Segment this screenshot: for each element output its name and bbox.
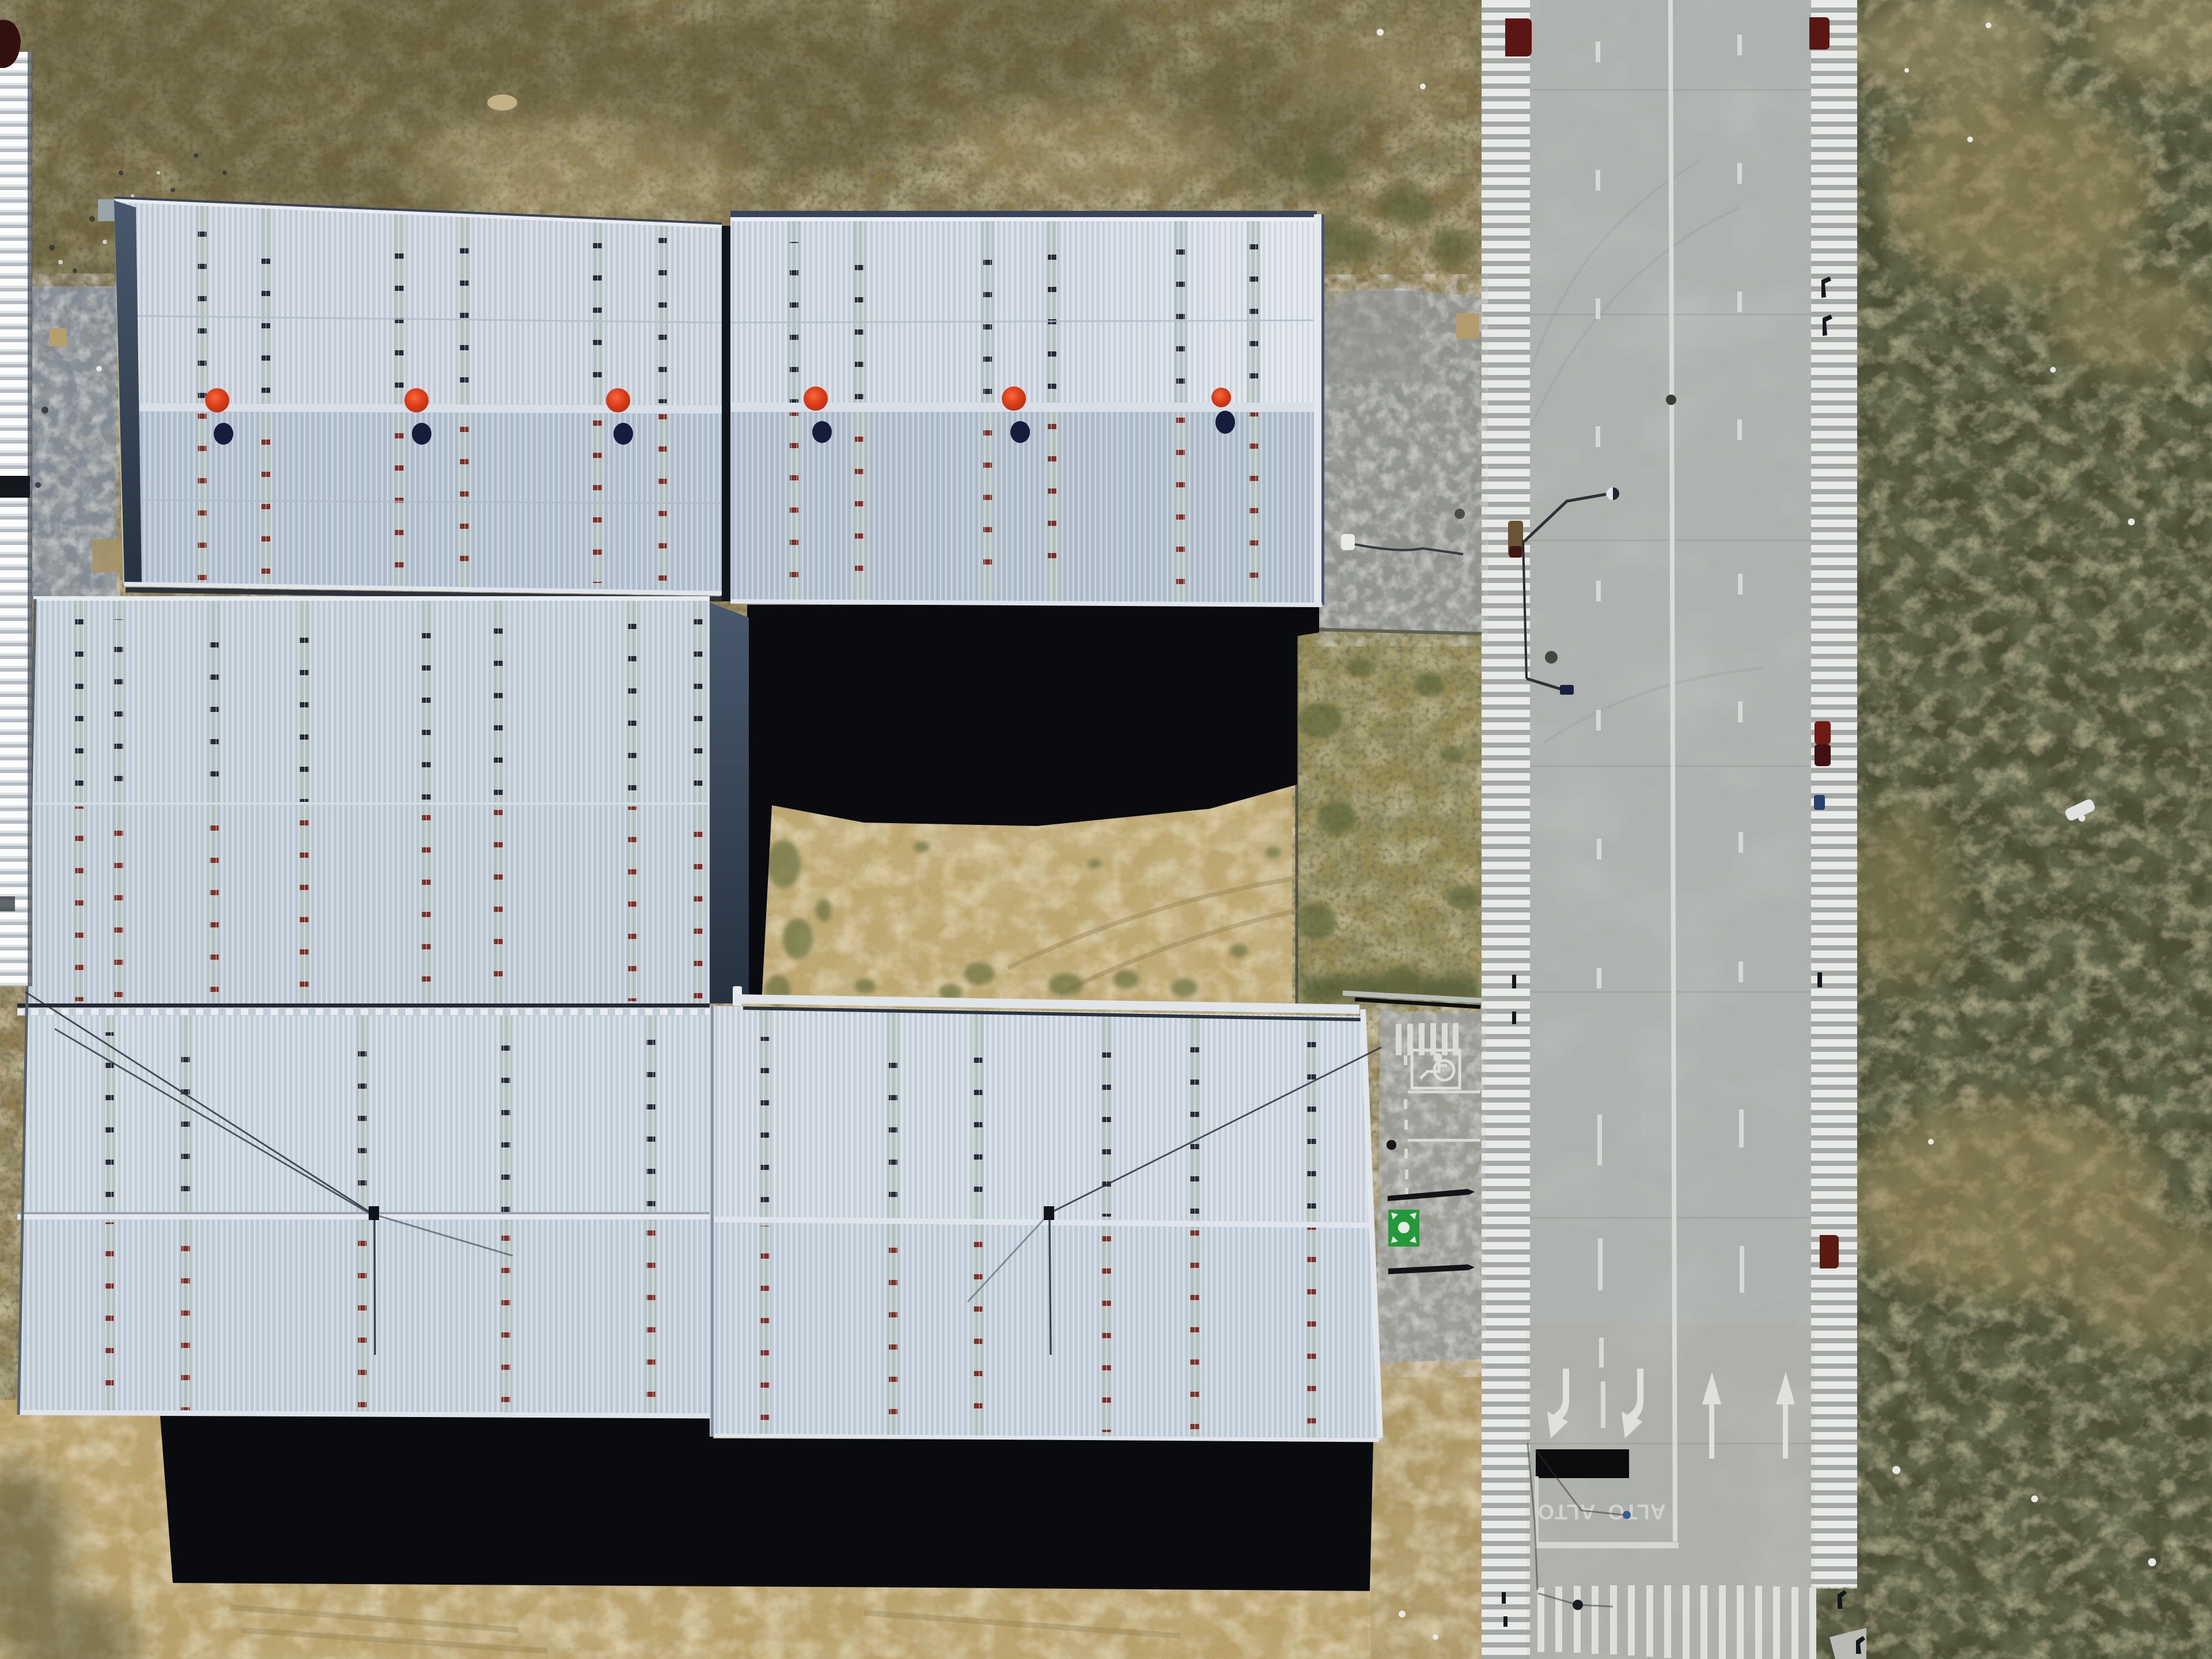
svg-text:ALTO: ALTO <box>1607 1500 1665 1524</box>
